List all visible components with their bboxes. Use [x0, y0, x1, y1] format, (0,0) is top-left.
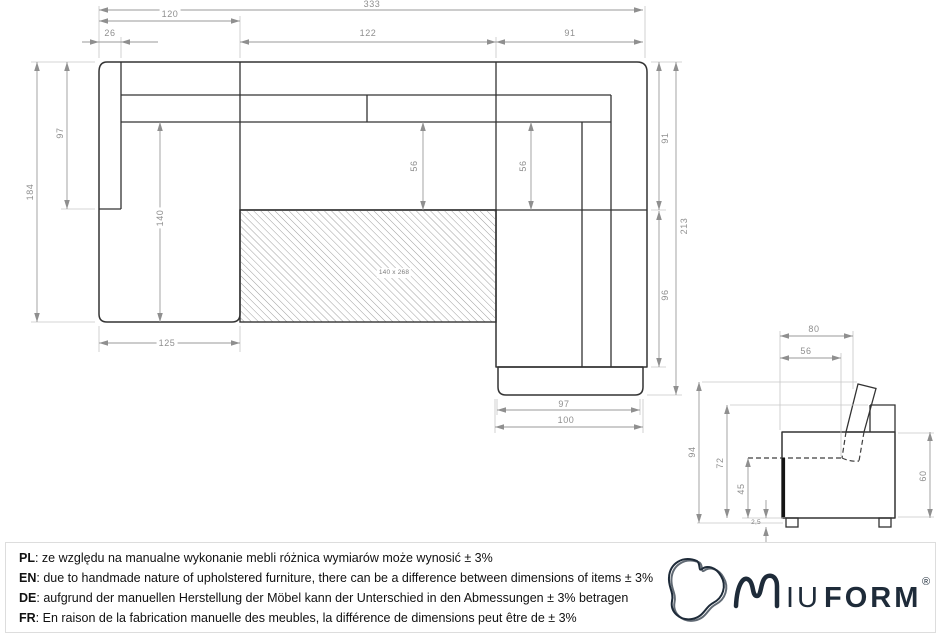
stylized-m — [736, 576, 777, 606]
dim-right-chaise-length: 96 — [660, 287, 670, 302]
dim-chaise-width: 125 — [157, 338, 178, 348]
dim-seat-depth-right: 56 — [518, 158, 528, 173]
note-fr-text: : En raison de la fabrication manuelle d… — [36, 611, 577, 625]
dim-side-backrest-height: 72 — [715, 455, 725, 470]
note-de: DE: aufgrund der manuellen Herstellung d… — [19, 591, 628, 606]
miuform-logo: IU FORM ® — [664, 554, 936, 628]
sleeping-area-label: 140 x 268 — [377, 268, 411, 278]
dim-side-body-height: 60 — [918, 468, 928, 483]
miuform-logo-graphic: IU FORM ® — [664, 554, 936, 628]
side-view-extension-lines — [697, 331, 934, 523]
note-en-text: : due to handmade nature of upholstered … — [36, 571, 653, 585]
dim-side-seat-height: 45 — [736, 481, 746, 496]
sleeping-area-hatch — [240, 210, 496, 322]
bean-icon — [669, 559, 726, 621]
dim-chaise-length: 140 — [155, 208, 165, 229]
note-fr-lang: FR — [19, 611, 36, 625]
note-fr: FR: En raison de la fabrication manuelle… — [19, 611, 577, 626]
side-view-sofa — [748, 384, 895, 527]
dim-overall-width: 333 — [362, 0, 383, 9]
note-de-text: : aufgrund der manuellen Herstellung der… — [36, 591, 628, 605]
dim-armrest-length: 97 — [55, 125, 65, 140]
note-pl: PL: ze względu na manualne wykonanie meb… — [19, 551, 493, 566]
note-en: EN: due to handmade nature of upholstere… — [19, 571, 653, 586]
note-pl-text: : ze względu na manualne wykonanie mebli… — [35, 551, 493, 565]
dim-left-section-width: 120 — [160, 9, 181, 19]
note-de-lang: DE — [19, 591, 36, 605]
dim-side-total-height: 94 — [687, 444, 697, 459]
dim-armrest-width: 26 — [102, 28, 117, 38]
dim-side-top-width: 80 — [806, 324, 821, 334]
registered-mark: ® — [922, 576, 930, 588]
dim-side-seat-depth: 56 — [798, 346, 813, 356]
dim-right-depth-total: 213 — [679, 216, 689, 237]
dim-footer-width: 100 — [556, 415, 577, 425]
technical-drawing-sheet: 333 120 26 122 91 184 97 140 56 56 91 21… — [0, 0, 940, 640]
dim-right-width: 91 — [562, 28, 577, 38]
top-view-sofa-outline — [99, 62, 647, 395]
note-en-lang: EN — [19, 571, 36, 585]
dim-footer-width-top: 97 — [556, 399, 571, 409]
dim-seat-depth-middle: 56 — [409, 158, 419, 173]
dim-left-depth: 184 — [25, 182, 35, 203]
wordmark-iu: IU — [786, 582, 821, 614]
note-pl-lang: PL — [19, 551, 35, 565]
dim-middle-width: 122 — [358, 28, 379, 38]
dim-right-depth-top: 91 — [660, 130, 670, 145]
wordmark-form: FORM — [824, 582, 921, 614]
wordmark: IU FORM ® — [736, 576, 930, 614]
dim-side-clearance: 2,5 — [749, 518, 763, 528]
